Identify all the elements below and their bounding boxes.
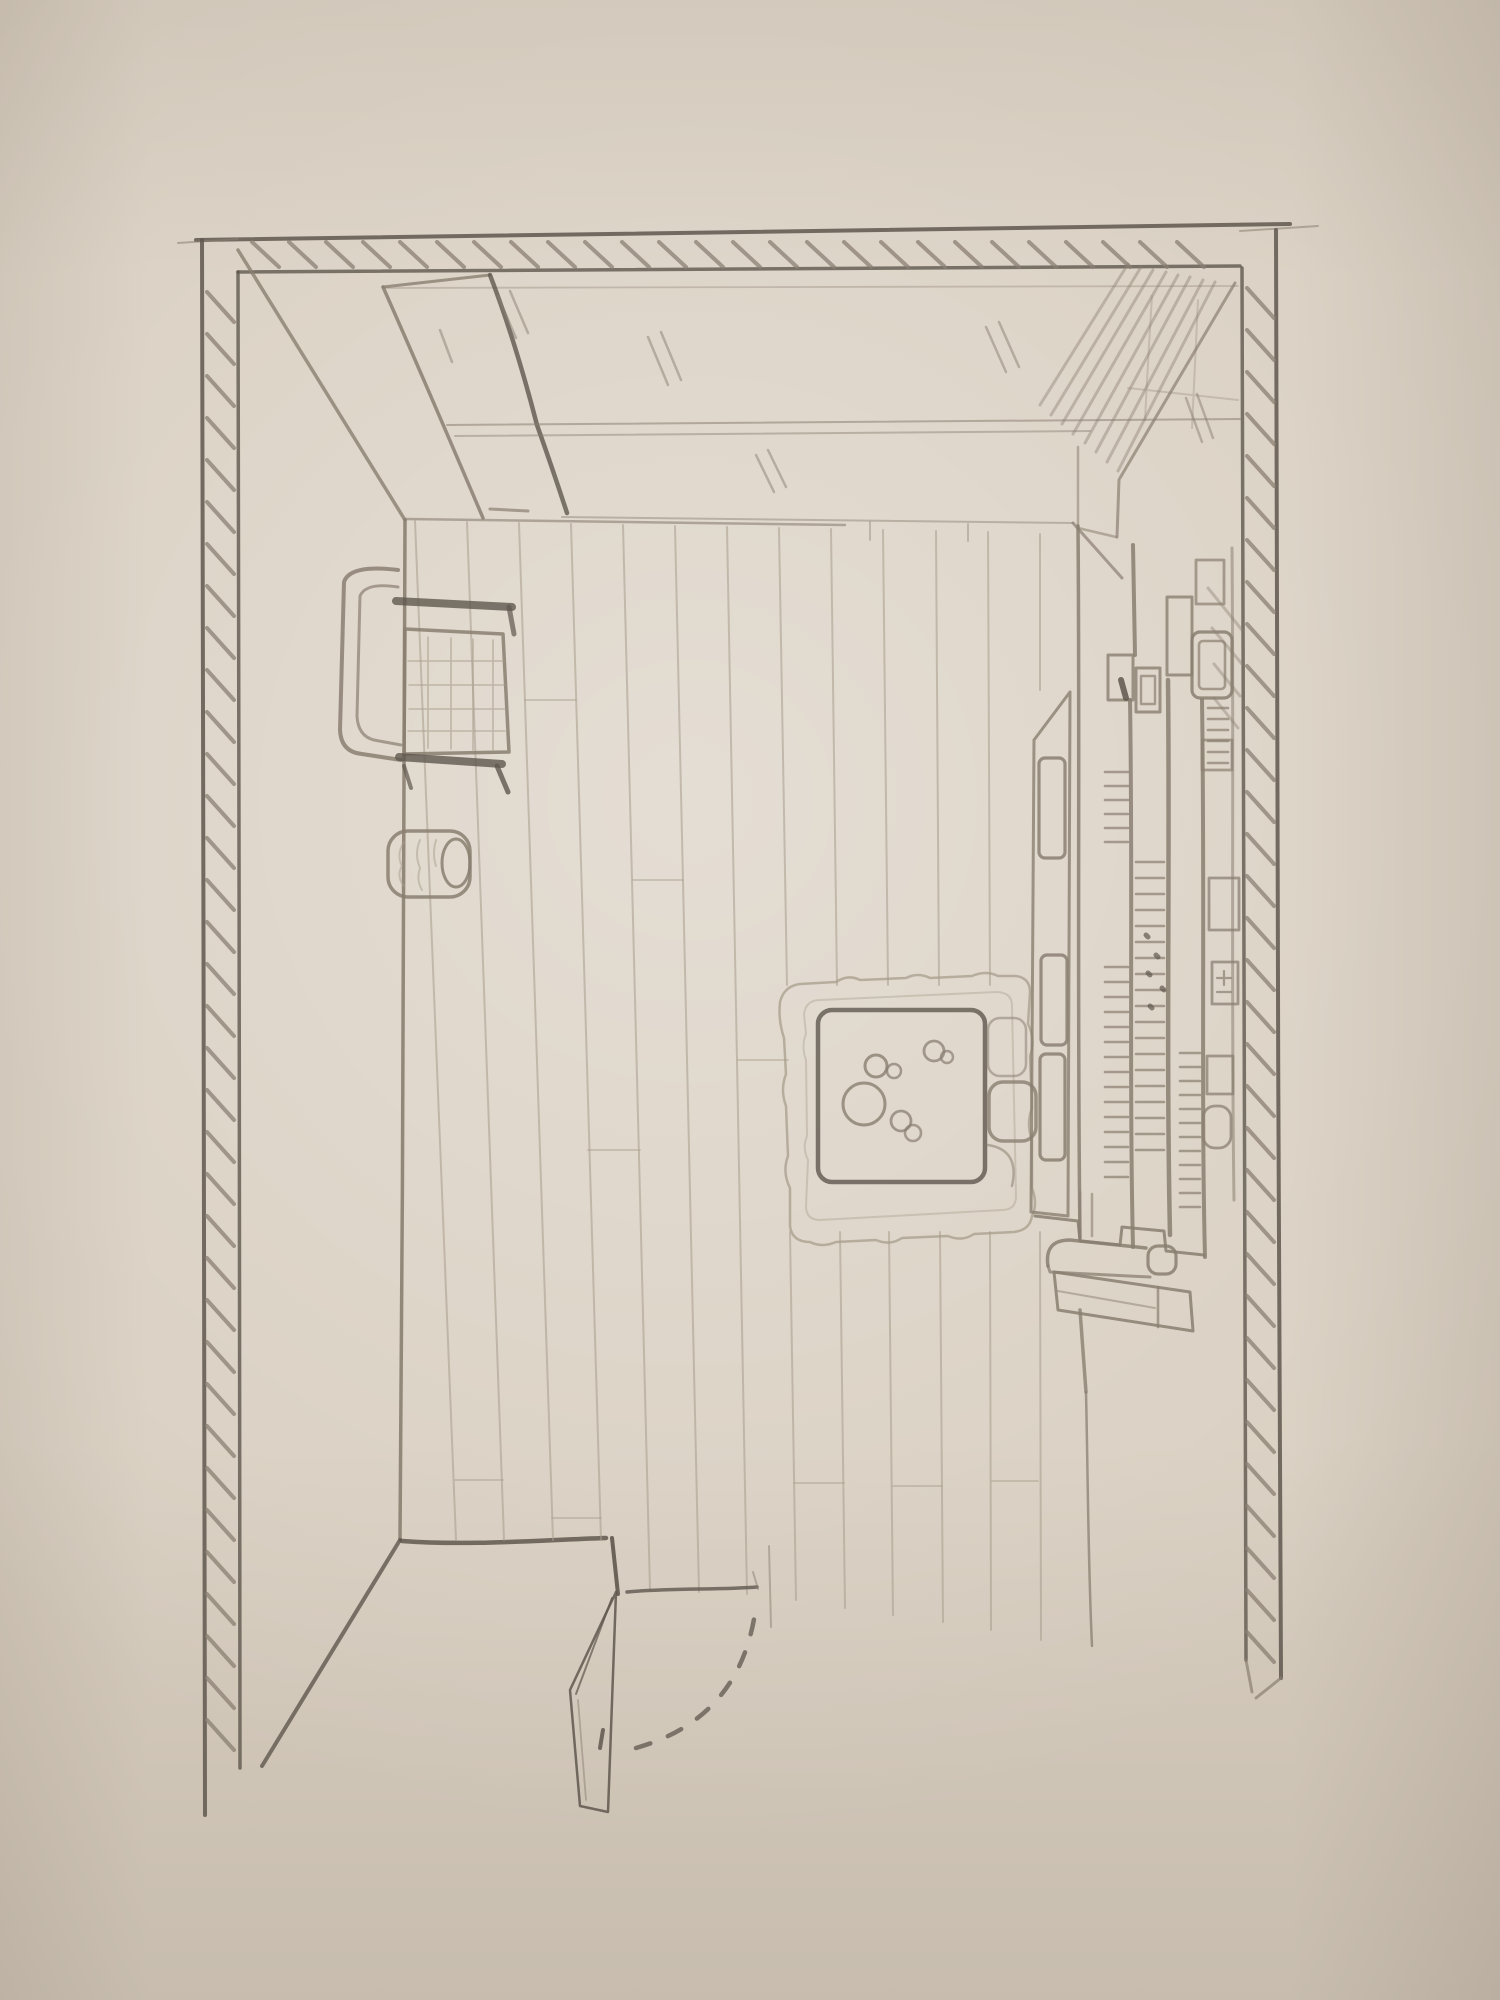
glass-pane-3 [1040,1054,1065,1160]
shelf-upright-a [1078,526,1080,1238]
back-wall-ticks [870,522,968,541]
desk-front-rail [399,757,502,764]
right-wall-hatching [1247,288,1274,1662]
top-wall-hatching [252,242,1204,267]
door-swing-arc [636,1606,756,1748]
right-wall [1242,230,1281,1698]
books-col-de [1208,708,1228,763]
shelf-upright-d [1202,700,1205,1257]
window-sill-line-1 [447,419,1240,425]
window-frame-top [383,275,490,287]
desk-leg-right [497,766,508,792]
left-wall-hatching [207,292,234,1750]
floor-planks [415,521,1041,1640]
side-chair-arm [988,1145,1014,1186]
box-6 [1202,740,1232,770]
door-knob-stem [600,1730,603,1748]
door-threshold-line [627,1587,757,1592]
books-col-cd [1180,1053,1200,1207]
glass-cabinet [1031,692,1070,1216]
desk-chair-inner [357,586,401,745]
left-baseboard-diagonal [262,1540,400,1766]
window-sill-line-2 [455,431,1090,436]
room-sketch: Top-down perspective sketch of a room in… [0,0,1500,2000]
top-wall-outer-line [196,224,1290,240]
cup-1-handle [887,1064,901,1078]
box-8-cross-marks [1217,971,1231,992]
box-dark-handle [1121,680,1126,698]
plank-seams [455,700,1038,1518]
left-wall [200,240,244,1822]
desk-back-rail [396,601,512,607]
bench-slab-bottom [1048,1266,1150,1277]
wardrobe-front-edge [1120,283,1235,478]
left-wall-outer-line [202,240,205,1815]
box-7 [1209,878,1239,930]
wardrobe-top-shading [1040,264,1215,471]
wardrobe [1040,264,1242,728]
table [818,1010,1036,1186]
cup-1 [865,1055,887,1077]
box-3-tall [1167,597,1192,675]
door-leaf-edge-line [576,1598,612,1694]
right-wall-outer-line [1276,230,1281,1678]
top-wall-overshoot [178,226,1318,243]
bench-leg-long-line [1086,1392,1092,1646]
shelf-upright-c [1168,680,1170,1235]
plank-lines [415,521,1041,1640]
side-chair-back [988,1018,1026,1076]
plate [843,1083,885,1125]
bench-body-inner-line [1058,1291,1155,1308]
shelf-bottom-steps [1035,1216,1204,1255]
stool-seat-ellipse [442,839,470,887]
bench-leg [1080,1310,1086,1392]
shelf-bottom-supports [1080,1192,1092,1236]
top-wall [178,224,1318,273]
window-pane-bottom [490,509,528,511]
glass-pane-1 [1039,758,1065,858]
bowl-2 [905,1125,921,1141]
desk [340,569,514,793]
left-corner-diagonal [238,250,405,520]
bench [1047,1240,1193,1646]
box-9 [1207,1056,1233,1094]
window-mullion-left [383,287,483,518]
paper-sheet: Top-down perspective sketch of a room in… [0,0,1500,2000]
box-2-inner [1141,676,1155,704]
desk-chair-outer [340,569,401,761]
door-leaf-outline [570,1592,616,1812]
door-hinge-post [612,1538,618,1594]
right-wall-taper-end [1246,1660,1281,1698]
box-4 [1196,560,1224,604]
box-10-rounded [1203,1106,1231,1148]
window-mullion-right [490,275,567,513]
right-wall-inner-line [1242,268,1246,1660]
glass-pane-2 [1041,955,1067,1045]
desk-back-rail-hook [509,607,514,634]
door-knob [599,1715,609,1725]
box-5-inner [1199,641,1225,689]
wardrobe-base-lines [1078,447,1116,537]
room-structure [238,250,1122,1766]
books-col-ab-upper [1105,772,1128,842]
window-head-line [383,286,1238,288]
top-right-corner-block [1238,229,1274,267]
tableware [843,1041,953,1141]
door [570,1538,771,1812]
left-wall-inner-line [238,272,240,1768]
shelf-upright-b [1130,545,1135,1247]
book-dark-speckles [1146,935,1164,1008]
box-2 [1136,668,1160,712]
shelf-top-corner-edge [1073,523,1122,578]
storage-boxes [1108,560,1239,1148]
wardrobe-front-corner [1117,480,1119,537]
books-col-ab-lower [1105,967,1128,1177]
